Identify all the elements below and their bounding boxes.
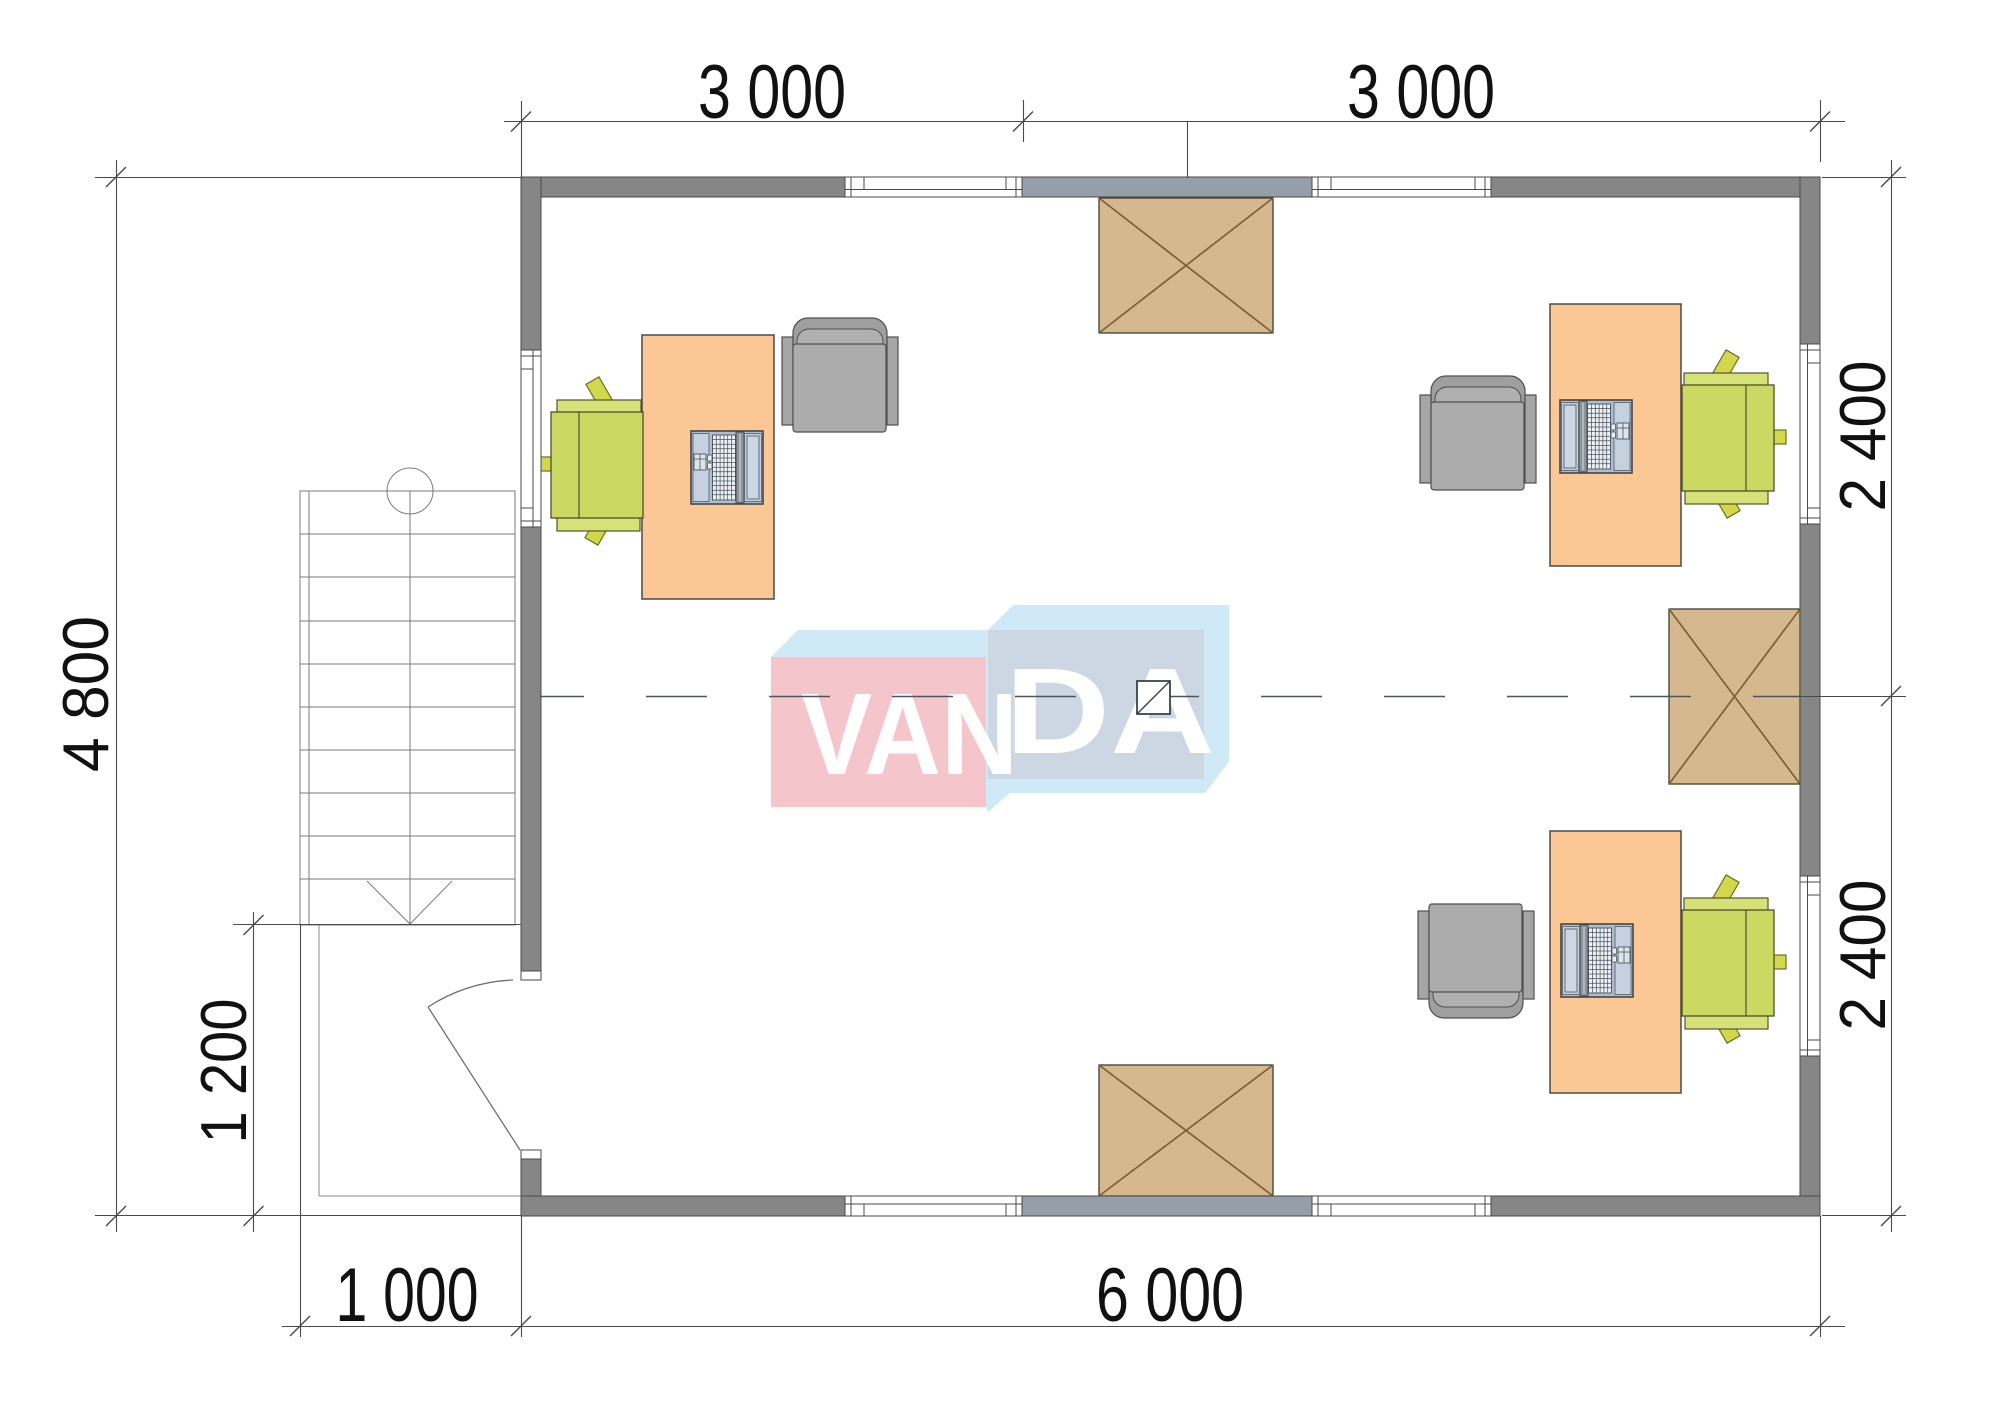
svg-text:DA: DA [1005,643,1215,779]
svg-text:1 000: 1 000 [336,1253,479,1338]
svg-text:4 800: 4 800 [49,616,122,772]
svg-text:1 200: 1 200 [187,999,260,1144]
svg-text:3 000: 3 000 [698,50,846,135]
svg-text:6 000: 6 000 [1096,1253,1244,1338]
svg-text:3 000: 3 000 [1347,50,1495,135]
svg-text:2 400: 2 400 [1826,880,1899,1031]
svg-text:VAN: VAN [801,669,1018,799]
svg-text:2 400: 2 400 [1826,361,1899,512]
